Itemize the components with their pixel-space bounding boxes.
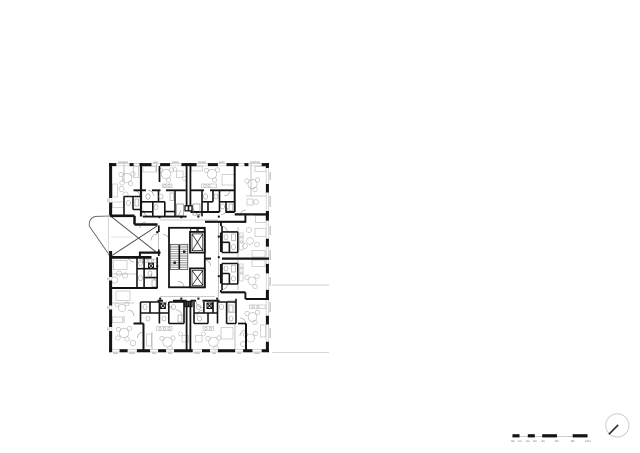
svg-text:6m: 6m	[555, 439, 560, 443]
svg-text:3m: 3m	[533, 439, 538, 443]
svg-text:1m: 1m	[518, 439, 523, 443]
svg-text:4m: 4m	[541, 439, 546, 443]
svg-text:0m: 0m	[511, 439, 516, 443]
svg-text:10m: 10m	[585, 439, 591, 443]
svg-text:2m: 2m	[526, 439, 531, 443]
svg-text:8m: 8m	[571, 439, 576, 443]
